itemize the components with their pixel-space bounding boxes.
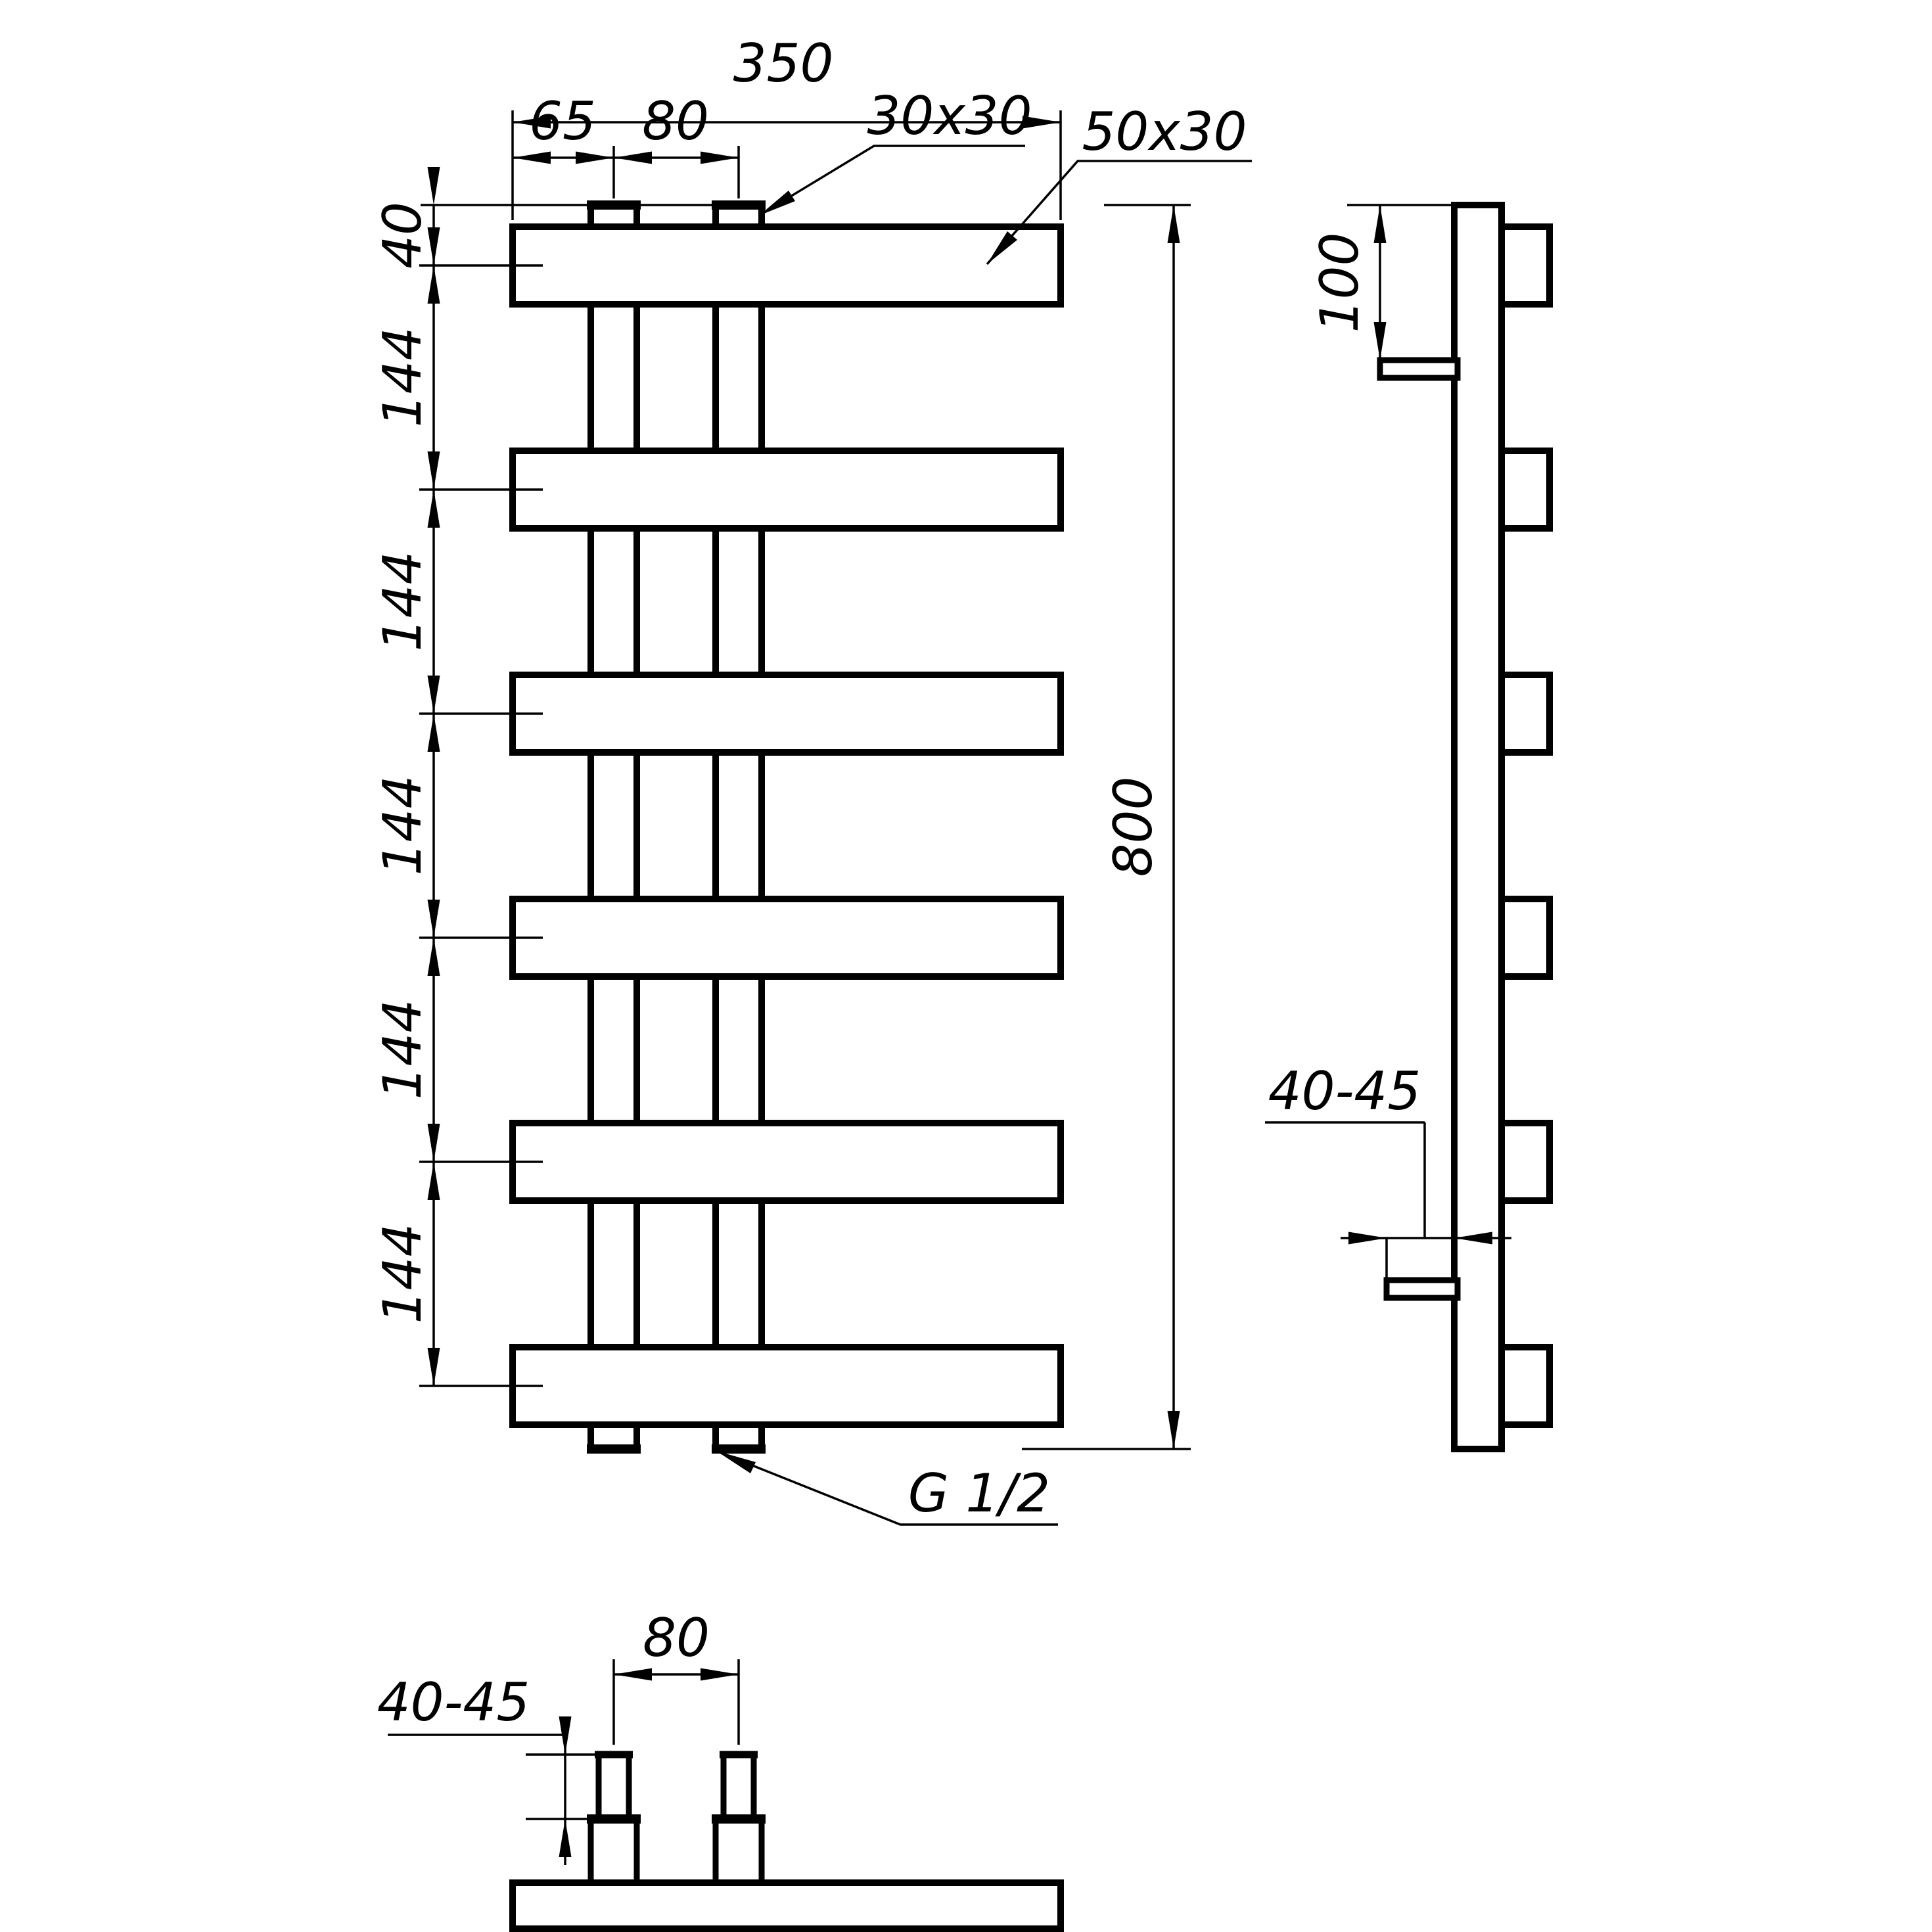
- bottom-bar: [513, 1883, 1061, 1929]
- dim-100-label: 100: [1309, 233, 1370, 333]
- label-g12-text: G 1/2: [908, 1463, 1050, 1524]
- front-bar-1: [513, 227, 1061, 304]
- label-30x30: 30x30: [759, 85, 1032, 216]
- front-bar-6: [513, 1347, 1061, 1425]
- front-view: 350 65 80: [372, 33, 1252, 1525]
- dim-40-label: 40: [372, 202, 433, 269]
- front-bar-4: [513, 899, 1061, 977]
- dim-40-45-bottom-label: 40-45: [377, 1672, 530, 1733]
- wall-bracket-bottom: [1387, 1280, 1458, 1298]
- dim-65-label: 65: [529, 91, 596, 152]
- bottom-thread-pipe-left: [599, 1755, 629, 1819]
- dim-40-45-side-label: 40-45: [1268, 1061, 1421, 1122]
- dim-144-label-4: 144: [372, 1000, 433, 1100]
- front-tube-right: [716, 205, 762, 1449]
- front-bar-5: [513, 1123, 1061, 1201]
- side-bar-2: [1502, 451, 1550, 528]
- bottom-view: 80 40-45: [377, 1607, 1061, 1929]
- dim-144-label-1: 144: [372, 327, 433, 428]
- label-30x30-text: 30x30: [867, 85, 1032, 147]
- drawing-sheet: 350 65 80: [0, 0, 1932, 1932]
- front-bar-2: [513, 451, 1061, 528]
- dim-144-label-2: 144: [372, 551, 433, 652]
- wall-bracket-top: [1380, 360, 1458, 378]
- side-bar-6: [1502, 1347, 1550, 1425]
- front-bar-3: [513, 675, 1061, 752]
- label-50x30-text: 50x30: [1082, 101, 1247, 162]
- dim-40-45-bottom: 40-45: [377, 1672, 618, 1865]
- technical-drawing: 350 65 80: [0, 0, 1932, 1932]
- side-view: 100 40-45: [1265, 205, 1550, 1449]
- dim-144-label-3: 144: [372, 775, 433, 876]
- dim-144-label-5: 144: [372, 1224, 433, 1324]
- dim-800: 800: [1022, 205, 1191, 1449]
- bottom-thread-pipe-right: [724, 1755, 754, 1819]
- side-bar-4: [1502, 899, 1550, 977]
- dim-65-80: 65 80: [513, 91, 739, 198]
- dim-80-bottom: 80: [614, 1607, 739, 1745]
- side-bar-3: [1502, 675, 1550, 752]
- dim-800-label: 800: [1103, 777, 1164, 877]
- dim-350-label: 350: [733, 33, 834, 94]
- side-bar-5: [1502, 1123, 1550, 1201]
- side-bar-1: [1502, 227, 1550, 304]
- bottom-tube-base-left: [591, 1819, 637, 1883]
- side-riser: [1454, 205, 1502, 1449]
- dim-80-label: 80: [642, 91, 709, 152]
- dim-80-bottom-label: 80: [643, 1607, 710, 1668]
- front-tube-left: [591, 205, 637, 1449]
- label-g12: G 1/2: [716, 1451, 1058, 1525]
- bottom-tube-base-right: [716, 1819, 762, 1883]
- dim-100: 100: [1309, 205, 1454, 360]
